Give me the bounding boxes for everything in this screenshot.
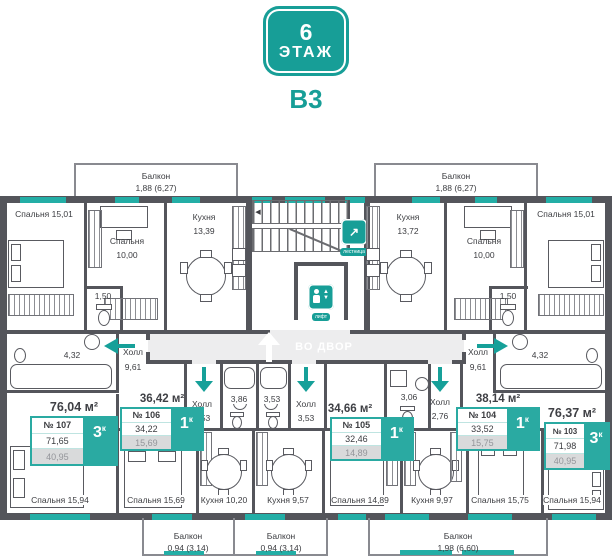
room-label: Спальня 14,89 <box>331 495 389 505</box>
wall <box>0 513 612 520</box>
washbasin <box>84 334 100 350</box>
washer <box>390 370 407 387</box>
courtyard-label: ВО ДВОР <box>295 341 353 353</box>
entrance-arrow-apt104 <box>431 367 449 393</box>
room-area: 3,53 <box>298 413 315 423</box>
wall <box>216 360 292 364</box>
pillow <box>11 244 21 261</box>
chair <box>224 262 232 274</box>
balcony-wall <box>536 163 538 198</box>
window <box>468 514 512 520</box>
room-label: Кухня <box>397 212 420 222</box>
lift-person-icon <box>314 289 319 294</box>
room-area: 9,61 <box>470 362 487 372</box>
wall <box>252 430 255 513</box>
chair <box>430 448 441 455</box>
window <box>172 197 200 203</box>
wall <box>350 330 605 334</box>
room-label: Балкон <box>174 531 203 541</box>
wall <box>316 360 428 364</box>
wardrobe <box>8 294 74 316</box>
apartment-area2: 40,95 <box>546 453 584 468</box>
wall <box>294 262 348 266</box>
window <box>475 197 497 203</box>
balcony-wall <box>368 554 548 556</box>
apartment-rooms-count: 1к <box>171 409 202 449</box>
section-label: В3 <box>289 84 322 115</box>
room-area: 10,00 <box>473 250 494 260</box>
room-label: Спальня 15,69 <box>127 495 185 505</box>
pillow <box>11 265 21 282</box>
room-area: 0,94 (3,14) <box>260 543 301 553</box>
window <box>20 197 66 203</box>
toilet <box>268 416 278 429</box>
stove-unit <box>366 264 380 277</box>
apartment-card-105[interactable]: № 105 32,46 14,89 1к <box>330 417 414 461</box>
pillow <box>592 472 601 487</box>
apartment-number: № 106 <box>122 409 171 422</box>
window <box>552 514 596 520</box>
chair <box>305 460 312 471</box>
balcony-wall <box>546 518 548 556</box>
room-area: 1,88 (6,27) <box>435 183 476 193</box>
wardrobe <box>104 298 158 320</box>
floor-number: 6 <box>300 20 313 44</box>
room-label: Балкон <box>142 171 171 181</box>
desk <box>100 206 148 228</box>
courtyard-arrow-icon <box>258 332 280 362</box>
wall <box>164 203 167 334</box>
room-area: 2,76 <box>432 411 449 421</box>
room-area: 1,50 <box>95 291 112 301</box>
room-area: 0,94 (3,14) <box>167 543 208 553</box>
entrance-arrow-apt106 <box>195 367 213 393</box>
room-area: 4,32 <box>532 350 549 360</box>
toilet <box>502 310 514 326</box>
chair <box>201 460 208 471</box>
floor-word: ЭТАЖ <box>279 44 333 62</box>
apartment-card-107[interactable]: № 107 71,65 40,95 3к <box>30 416 118 466</box>
pillow <box>591 244 601 261</box>
wall <box>294 262 298 320</box>
pillow <box>13 478 25 498</box>
apartment-card-106[interactable]: № 106 34,22 15,69 1к <box>120 407 204 451</box>
bathtub <box>224 367 255 389</box>
washbasin <box>415 377 429 391</box>
room-label: Холл <box>430 397 450 407</box>
room-label: Спальня 15,94 <box>543 495 601 505</box>
window <box>546 197 592 203</box>
room-label: Спальня <box>110 236 144 246</box>
apartment-area1: 34,22 <box>122 422 171 436</box>
kitchen-counter <box>256 432 268 486</box>
stairs-flight-upper <box>252 200 348 224</box>
wall <box>444 203 447 334</box>
apartment-area2: 14,89 <box>332 445 381 459</box>
window <box>115 197 139 203</box>
room-area: 3,53 <box>264 394 281 404</box>
room-label: Спальня 15,94 <box>31 495 89 505</box>
window <box>412 197 440 203</box>
room-area: 3,86 <box>231 394 248 404</box>
window <box>338 514 366 520</box>
entrance-arrow-apt105 <box>297 367 315 393</box>
room-area: 1,98 (6,60) <box>437 543 478 553</box>
room-area: 13,39 <box>193 226 214 236</box>
wall <box>84 203 87 334</box>
room-area: 4,32 <box>64 350 81 360</box>
toilet <box>98 310 110 326</box>
apartment-total-area: 38,14 м² <box>476 393 520 405</box>
toilet <box>14 348 26 363</box>
dining-table <box>206 454 242 490</box>
floor-plan-page: 6 ЭТАЖ В3 <box>0 0 612 560</box>
room-label: Кухня 9,97 <box>411 495 453 505</box>
chair <box>200 250 212 258</box>
chair <box>180 262 188 274</box>
window <box>152 514 192 520</box>
apartment-total-area: 76,37 м² <box>548 406 596 420</box>
toilet <box>586 348 598 363</box>
stairs-icon-glyph: ↗ <box>349 225 359 239</box>
room-area: 3,06 <box>401 392 418 402</box>
wall <box>288 364 291 430</box>
chair <box>218 448 229 455</box>
wall <box>344 262 348 320</box>
wardrobe <box>538 294 604 316</box>
sink-unit <box>366 248 380 261</box>
toilet <box>232 416 242 429</box>
apartment-area2: 15,75 <box>458 435 507 449</box>
chair <box>400 294 412 302</box>
apartment-rooms-count: 1к <box>507 409 538 449</box>
lift-arrows-icon: ▲▼ <box>323 289 329 301</box>
chair <box>266 460 273 471</box>
window <box>30 514 90 520</box>
wall <box>605 196 612 520</box>
apartment-area1: 71,65 <box>32 433 83 449</box>
stove-unit <box>232 264 246 277</box>
apartment-card-103[interactable]: № 103 71,98 40,95 3к <box>544 422 610 470</box>
chair <box>283 448 294 455</box>
apartment-total-area: 34,66 м² <box>328 403 372 415</box>
wall <box>489 286 528 289</box>
room-label: Кухня 9,57 <box>267 495 309 505</box>
stairs-icon-label: лестница <box>340 248 368 256</box>
balcony-wall <box>74 163 76 198</box>
balcony-wall <box>233 518 235 556</box>
sink-unit <box>232 248 246 261</box>
stairs-direction-mark: ◀ <box>255 208 260 216</box>
wall <box>84 286 123 289</box>
apartment-number: № 105 <box>332 419 381 432</box>
chair <box>400 250 412 258</box>
dining-table <box>271 454 307 490</box>
wall <box>462 352 466 364</box>
balcony-wall <box>74 163 238 165</box>
wall <box>462 334 466 340</box>
room-label: Спальня 15,01 <box>537 209 595 219</box>
wall <box>3 390 119 393</box>
wall <box>324 364 327 430</box>
pillow <box>591 265 601 282</box>
room-label: Балкон <box>442 171 471 181</box>
pillow <box>13 450 25 470</box>
apartment-number: № 104 <box>458 409 507 422</box>
wall <box>146 334 150 340</box>
room-label: Спальня 15,75 <box>471 495 529 505</box>
balcony-wall <box>236 163 238 198</box>
chair <box>380 262 388 274</box>
balcony-wall <box>326 518 328 556</box>
room-label: Спальня <box>467 236 501 246</box>
room-label: Холл <box>468 347 488 357</box>
room-label: Спальня 15,01 <box>15 209 73 219</box>
apartment-rooms-count: 3к <box>83 418 116 464</box>
room-area: 1,88 (6,27) <box>135 183 176 193</box>
room-label: Балкон <box>444 531 473 541</box>
pillow <box>158 451 176 462</box>
apartment-area2: 15,69 <box>122 435 171 449</box>
apartment-area1: 32,46 <box>332 432 381 446</box>
apartment-area2: 40,95 <box>32 448 83 464</box>
bathtub <box>500 364 602 389</box>
chair <box>413 460 420 471</box>
apartment-area1: 71,98 <box>546 438 584 453</box>
lift-icon: ▲▼ <box>308 284 334 310</box>
apartment-total-area: 36,42 м² <box>140 393 184 405</box>
wall <box>322 430 325 513</box>
wall <box>7 330 270 334</box>
wall <box>220 364 223 430</box>
room-area: 9,61 <box>125 362 142 372</box>
wall <box>0 196 7 520</box>
lift-icon-label: лифт <box>312 313 330 321</box>
balcony-wall <box>142 518 144 556</box>
balcony-wall <box>374 163 376 198</box>
room-label: Балкон <box>267 531 296 541</box>
room-label: Кухня 10,20 <box>201 495 247 505</box>
floor-badge: 6 ЭТАЖ <box>263 6 349 76</box>
room-area: 10,00 <box>116 250 137 260</box>
chair <box>240 460 247 471</box>
wall <box>524 203 527 334</box>
room-area: 13,72 <box>397 226 418 236</box>
chair <box>200 294 212 302</box>
apartment-rooms-count: 3к <box>584 424 608 468</box>
bathtub <box>260 367 287 389</box>
dining-table <box>418 454 454 490</box>
washbasin <box>512 334 528 350</box>
apartment-area1: 33,52 <box>458 422 507 436</box>
wardrobe <box>510 210 524 268</box>
chair <box>424 262 432 274</box>
bathtub <box>10 364 112 389</box>
apartment-number: № 107 <box>32 418 83 433</box>
room-label: Холл <box>123 347 143 357</box>
room-area: 1,50 <box>500 291 517 301</box>
wardrobe <box>88 210 102 268</box>
wall <box>256 364 259 430</box>
window <box>385 514 429 520</box>
window <box>245 514 285 520</box>
dining-table <box>186 256 226 296</box>
room-label: Холл <box>296 399 316 409</box>
apartment-number: № 103 <box>546 424 584 438</box>
desk <box>464 206 512 228</box>
balcony-wall <box>374 163 538 165</box>
lift-person-icon <box>313 295 320 303</box>
balcony-wall <box>368 518 370 556</box>
pillow <box>128 451 146 462</box>
apartment-card-104[interactable]: № 104 33,52 15,75 1к <box>456 407 540 451</box>
room-label: Кухня <box>193 212 216 222</box>
apartment-total-area: 76,04 м² <box>50 400 98 414</box>
stairs-icon: ↗ <box>341 219 367 245</box>
apartment-rooms-count: 1к <box>381 419 412 459</box>
dining-table <box>386 256 426 296</box>
